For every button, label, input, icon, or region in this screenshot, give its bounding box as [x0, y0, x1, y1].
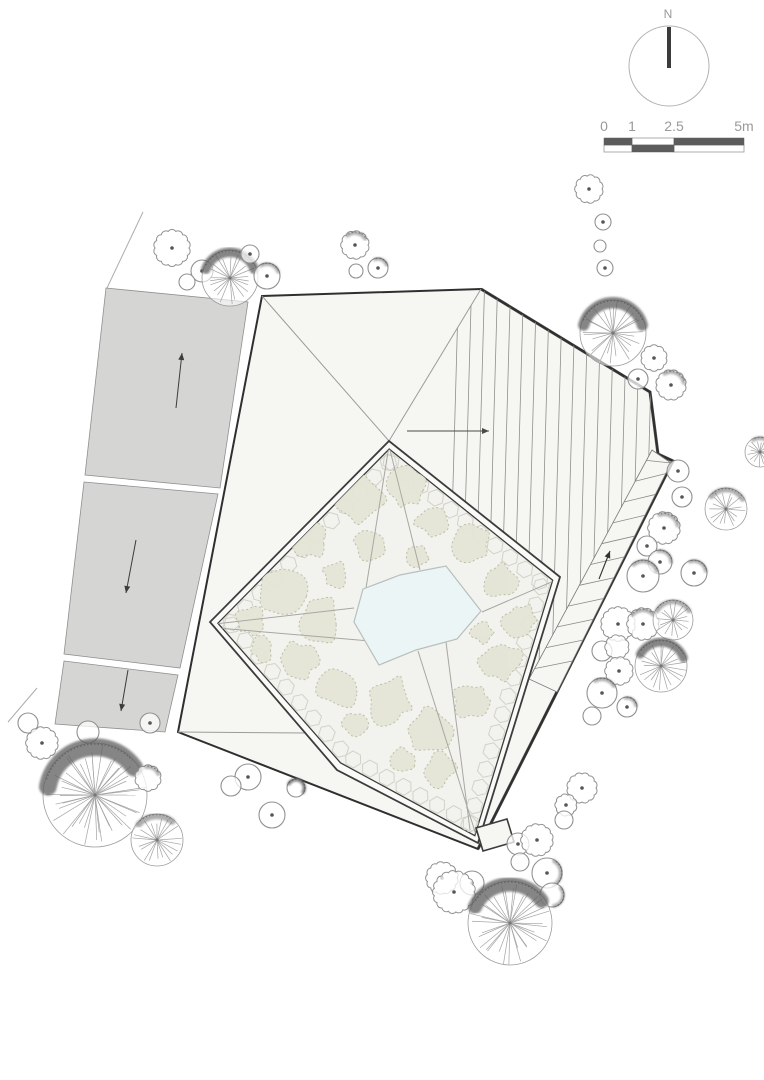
- scale-label-3: 5m: [734, 118, 753, 134]
- scale-label-1: 1: [628, 118, 636, 134]
- tree-bush: [259, 802, 285, 828]
- tree-scallop: [575, 175, 603, 203]
- tree-scallop: [605, 635, 629, 659]
- tree-wheel: [43, 743, 147, 847]
- tree-bush: [667, 460, 689, 482]
- scale-label-2: 2.5: [664, 118, 684, 134]
- tree-bush: [627, 560, 659, 592]
- tree-wheel: [653, 600, 693, 640]
- tree-bush: [672, 487, 692, 507]
- tree-bush: [587, 678, 617, 708]
- site-plan-canvas: N 0 1 2.5 5m: [0, 0, 764, 1080]
- road-segment: [85, 288, 248, 488]
- tree-bush: [595, 214, 611, 230]
- scale-label-0: 0: [600, 118, 608, 134]
- tree-wheel: [131, 814, 183, 866]
- tree-bush: [617, 697, 637, 717]
- tree-scallop: [341, 231, 369, 259]
- tree-bush: [628, 369, 648, 389]
- tree-bush: [140, 713, 160, 733]
- tree-bush: [511, 853, 529, 871]
- tree-bush: [241, 245, 259, 263]
- tree-bush: [368, 258, 388, 278]
- tree-bush: [221, 776, 241, 796]
- tree-bush: [681, 560, 707, 586]
- tree-bush: [287, 779, 305, 797]
- tree-wheel: [745, 437, 764, 467]
- tree-scallop: [135, 765, 161, 792]
- tree-bush: [254, 263, 280, 289]
- tree-wheel: [468, 881, 552, 965]
- tree-wheel: [635, 640, 687, 692]
- tree-scallop: [154, 230, 190, 267]
- tree-bush: [179, 274, 195, 290]
- site-plan-drawing: N 0 1 2.5 5m: [0, 0, 764, 1080]
- tree-bush: [594, 240, 606, 252]
- tree-scallop: [641, 345, 667, 372]
- tree-wheel: [580, 300, 646, 366]
- scale-bar-blocks: [604, 138, 744, 152]
- tree-bush: [555, 811, 573, 829]
- tree-bush: [597, 260, 613, 276]
- tree-bush: [349, 264, 363, 278]
- tree-bush: [583, 707, 601, 725]
- north-arrow: N: [629, 7, 709, 106]
- tree-wheel: [705, 488, 747, 530]
- tree-scallop: [656, 370, 686, 400]
- scale-bar: 0 1 2.5 5m: [600, 118, 754, 152]
- north-label: N: [664, 7, 673, 21]
